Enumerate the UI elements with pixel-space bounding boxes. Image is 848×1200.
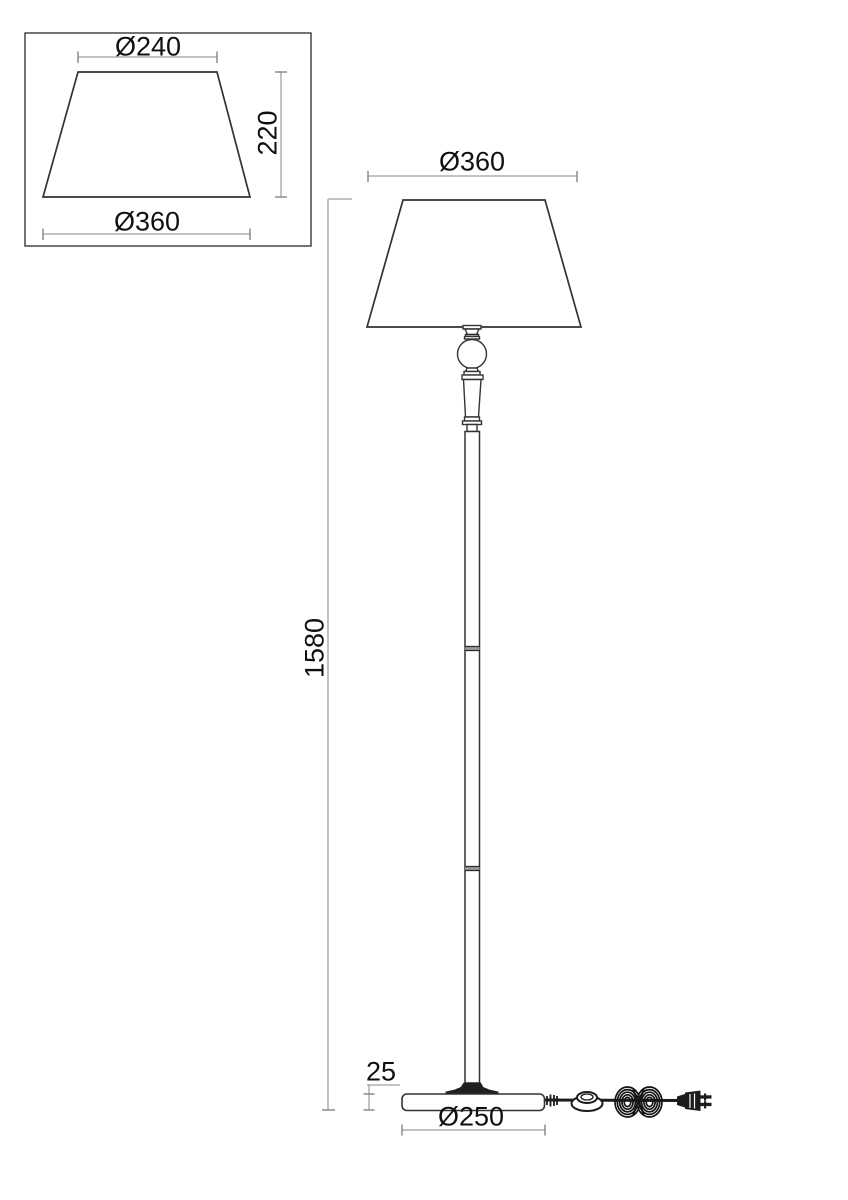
base-height-dimension-line bbox=[364, 1085, 401, 1110]
foot-switch bbox=[572, 1092, 603, 1111]
lamp-shade bbox=[367, 200, 581, 327]
power-cord-assembly bbox=[544, 1087, 712, 1117]
detail-bottom-diameter-label: Ø360 bbox=[114, 209, 180, 236]
shade-diameter-label: Ø360 bbox=[439, 149, 505, 176]
pole-joint-lower bbox=[465, 867, 480, 871]
base-diameter-label: Ø250 bbox=[438, 1104, 504, 1131]
pole-joint-upper bbox=[465, 647, 480, 651]
floor-lamp bbox=[367, 200, 581, 1111]
base-height-label: 25 bbox=[366, 1059, 396, 1086]
stem-ball bbox=[458, 340, 487, 369]
detail-top-diameter-label: Ø240 bbox=[115, 34, 181, 61]
stem-column bbox=[464, 380, 482, 418]
total-height-label: 1580 bbox=[302, 618, 329, 678]
power-plug bbox=[677, 1091, 712, 1112]
plug-body bbox=[685, 1091, 701, 1112]
lamp-technical-drawing: Ø240 220 Ø360 Ø360 1580 25 Ø250 bbox=[0, 0, 848, 1200]
plug-cord-grip bbox=[677, 1094, 685, 1108]
lamp-stem-ornament bbox=[458, 326, 487, 432]
detail-shade-profile bbox=[43, 72, 250, 197]
lamp-pole bbox=[465, 432, 480, 1084]
detail-height-label: 220 bbox=[255, 110, 282, 155]
cord-coil bbox=[615, 1087, 662, 1117]
drawing-linework bbox=[0, 0, 848, 1200]
pole-foot-flange bbox=[446, 1083, 498, 1095]
